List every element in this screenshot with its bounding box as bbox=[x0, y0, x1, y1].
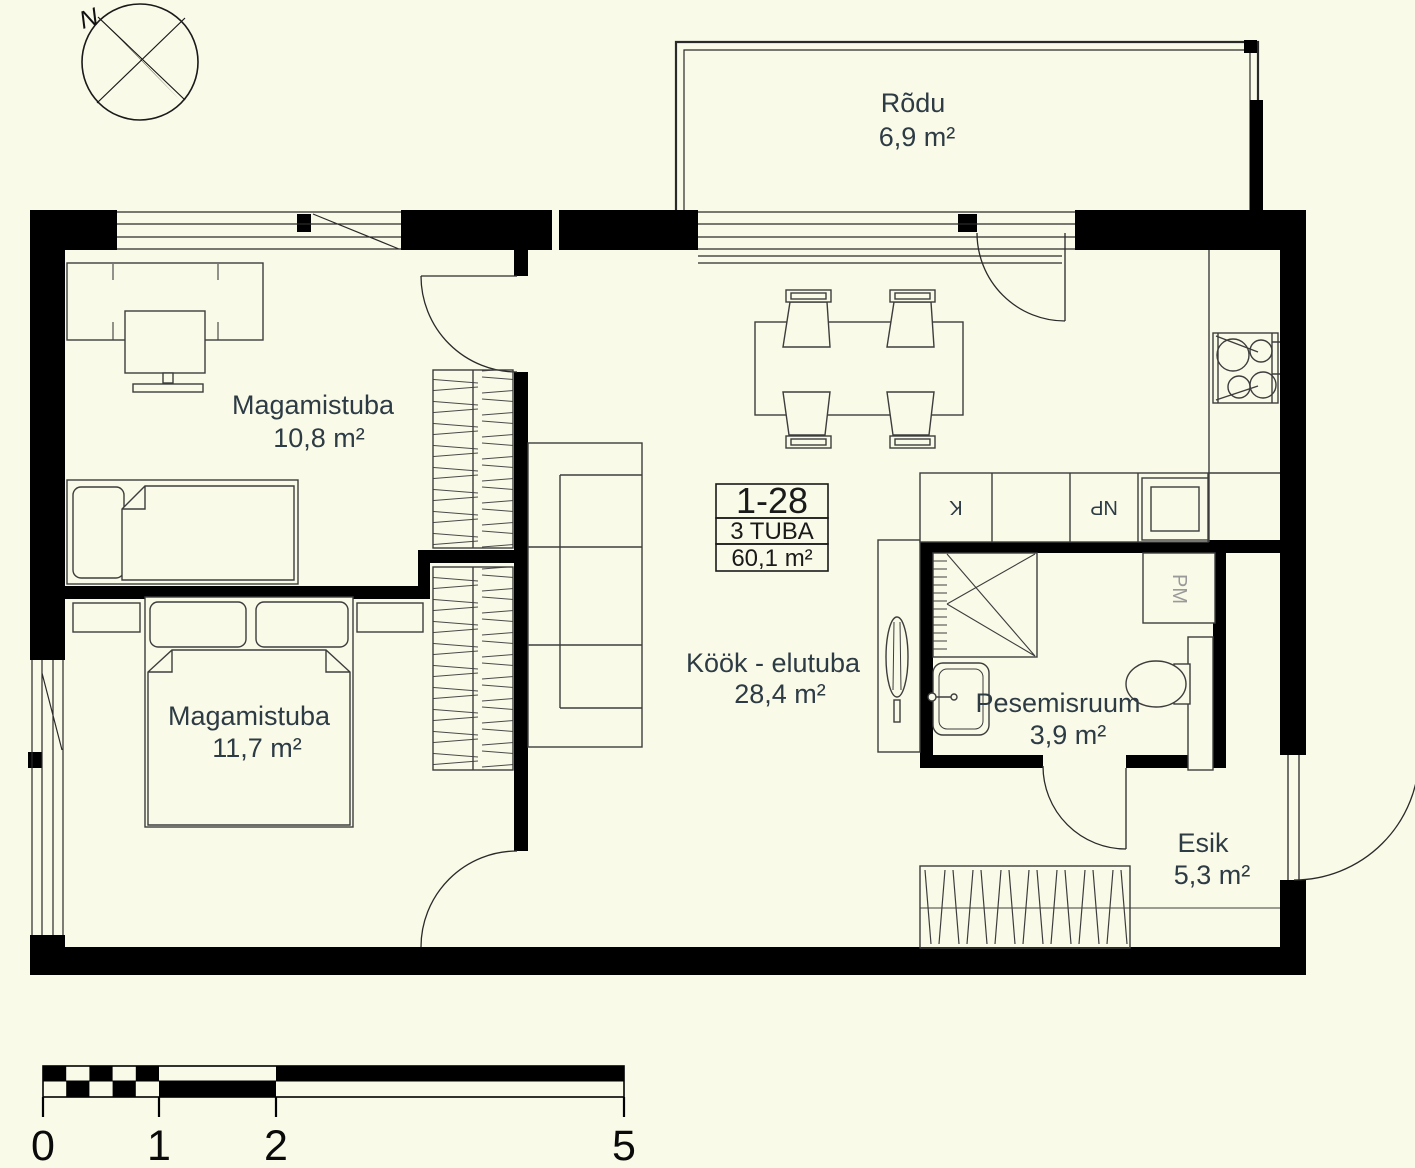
kitchen-cabinet-label: K bbox=[949, 496, 963, 518]
nightstand-right bbox=[357, 603, 423, 632]
window-bedroom-bottom bbox=[32, 660, 63, 935]
door-balcony bbox=[977, 233, 1065, 321]
wardrobe-bedroom-top bbox=[433, 370, 513, 548]
room-area-kitchen-living: 28,4 m² bbox=[734, 679, 826, 709]
room-label-hallway: Esik bbox=[1177, 828, 1229, 858]
stove bbox=[1213, 333, 1280, 403]
scale-tick-0: 0 bbox=[31, 1122, 55, 1168]
room-area-balcony: 6,9 m² bbox=[879, 122, 956, 152]
blanket bbox=[122, 486, 294, 580]
nightstand-left bbox=[73, 603, 140, 632]
pillow bbox=[73, 487, 124, 578]
room-label-balcony: Rõdu bbox=[881, 88, 946, 118]
door-bedroom-bottom bbox=[421, 851, 517, 947]
scale-tick-5: 5 bbox=[612, 1122, 636, 1168]
unit-room-count: 3 TUBA bbox=[730, 518, 814, 545]
wardrobe-bedroom-bottom bbox=[433, 567, 513, 770]
room-label-washroom: Pesemisruum bbox=[975, 688, 1140, 718]
room-area-bedroom-bottom: 11,7 m² bbox=[212, 733, 302, 763]
balcony-wall-segment bbox=[1250, 100, 1263, 210]
unit-info-box: 1-28 3 TUBA 60,1 m² bbox=[716, 480, 828, 572]
unit-number: 1-28 bbox=[736, 480, 808, 521]
dishwasher-label: NP bbox=[1090, 496, 1118, 518]
scale-tick-1: 1 bbox=[147, 1122, 171, 1168]
unit-total-area: 60,1 m² bbox=[731, 545, 812, 572]
compass: N bbox=[76, 2, 198, 120]
compass-north-label: N bbox=[76, 2, 103, 35]
scale-tick-2: 2 bbox=[264, 1122, 288, 1168]
window-bedroom-top bbox=[117, 212, 401, 249]
dining-chair bbox=[887, 290, 935, 347]
hall-closet bbox=[920, 866, 1130, 948]
balcony-corner-post bbox=[1244, 40, 1257, 53]
window-living-room bbox=[698, 212, 1075, 263]
dining-chair bbox=[887, 392, 935, 448]
kitchen-sink bbox=[1142, 478, 1208, 540]
door-washroom bbox=[1043, 766, 1126, 849]
dining-chair bbox=[783, 392, 831, 448]
room-area-bedroom-top: 10,8 m² bbox=[273, 423, 365, 453]
dining-chair bbox=[783, 290, 831, 347]
room-label-bedroom-bottom: Magamistuba bbox=[168, 701, 331, 731]
plant bbox=[878, 540, 920, 752]
room-area-washroom: 3,9 m² bbox=[1030, 720, 1107, 750]
floor-plan-page: N 1-28 3 TUBA 60,1 m² Rõdu 6,9 m² Magami… bbox=[0, 0, 1415, 1168]
furniture-bedroom-bottom bbox=[73, 567, 513, 827]
scale-bar: 0 1 2 5 bbox=[31, 1066, 636, 1168]
pillow bbox=[256, 602, 348, 647]
pillow bbox=[150, 602, 246, 647]
sofa bbox=[528, 443, 642, 747]
balcony-outline bbox=[676, 40, 1263, 210]
room-label-kitchen-living: Köök - elutuba bbox=[686, 648, 861, 678]
room-area-hallway: 5,3 m² bbox=[1174, 860, 1251, 890]
door-bedroom-top bbox=[421, 276, 517, 372]
shower bbox=[933, 553, 1037, 657]
floor-plan-drawing: N 1-28 3 TUBA 60,1 m² Rõdu 6,9 m² Magami… bbox=[0, 0, 1415, 1168]
room-label-bedroom-top: Magamistuba bbox=[232, 390, 395, 420]
washing-machine-label: PM bbox=[1168, 574, 1190, 604]
door-entrance bbox=[1288, 755, 1415, 880]
desk-chair bbox=[125, 311, 205, 373]
